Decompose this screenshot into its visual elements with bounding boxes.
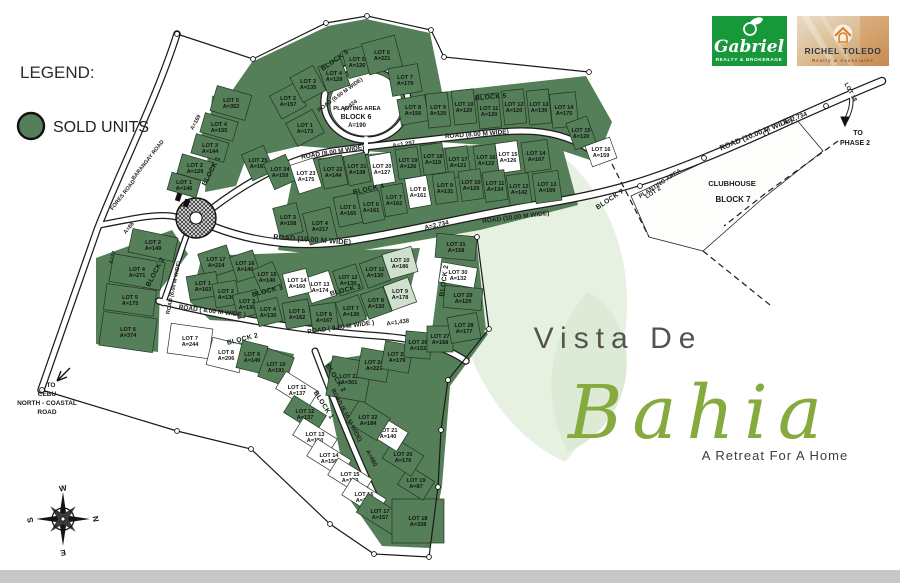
lot-block-2-28: LOT 28A=177 [447, 313, 481, 344]
lot-area-label: A=179 [389, 358, 406, 364]
lot-number-label: LOT 2 [145, 240, 161, 246]
lot-number-label: LOT 5 [289, 309, 305, 315]
lot-area-label: A=271 [129, 273, 146, 279]
lot-number-label: LOT 16 [236, 261, 255, 267]
lot-area-label: A=140 [380, 434, 397, 440]
lot-block-5-9: LOT 9A=120 [425, 92, 450, 128]
map-annotation: TO [853, 130, 863, 137]
lot-area-label: A=130 [218, 295, 235, 301]
lot-number-label: LOT 25 [249, 158, 268, 164]
lot-number-label: LOT 13 [311, 282, 330, 288]
lot-number-label: LOT 9 [437, 183, 453, 189]
lot-area-label: A=120 [430, 111, 447, 117]
lot-number-label: LOT 9 [430, 105, 446, 111]
lot-number-label: LOT 2 [187, 163, 203, 169]
map-annotation: BLOCK 6 [341, 114, 372, 121]
lot-number-label: LOT 10 [462, 180, 481, 186]
lot-number-label: LOT 17 [371, 509, 390, 515]
lot-area-label: A=126 [500, 158, 517, 164]
roundabout [175, 193, 216, 238]
lot-number-label: LOT 8 [410, 187, 426, 193]
lot-area-label: A=120 [506, 108, 523, 114]
lot-area-label: A=131 [437, 189, 454, 195]
lot-block-3-5: LOT 5A=162 [282, 299, 312, 329]
lot-block-5-10: LOT 10A=120 [451, 89, 476, 125]
lot-number-label: LOT 28 [455, 323, 474, 329]
lot-number-label: LOT 26 [409, 340, 428, 346]
lot-area-label: A=157 [280, 102, 297, 108]
lot-number-label: LOT 22 [359, 415, 378, 421]
lot-number-label: LOT 13 [530, 102, 549, 108]
lot-area-label: A=352 [223, 104, 240, 110]
lot-number-label: LOT 20 [373, 164, 392, 170]
lot-number-label: LOT 9 [244, 352, 260, 358]
lot-block-5-8: LOT 8A=156 [397, 95, 429, 125]
lot-area-label: A=129 [455, 299, 472, 305]
lot-area-label: A=161 [363, 208, 380, 214]
lot-number-label: LOT 16 [477, 155, 496, 161]
richel-tagline: Realty & Associates [812, 58, 874, 63]
lot-number-label: LOT 7 [397, 75, 413, 81]
lot-number-label: LOT 5 [349, 57, 365, 63]
lot-number-label: LOT 5 [223, 98, 239, 104]
sold-units-label: SOLD UNITS [53, 119, 149, 136]
lot-block-4-15: LOT 15A=126 [495, 141, 521, 174]
lot-area-label: A=129 [463, 186, 480, 192]
lot-block-5-13: LOT 13A=130 [526, 89, 551, 125]
lot-area-label: A=152 [410, 346, 427, 352]
lot-number-label: LOT 12 [339, 275, 358, 281]
map-annotation: PLANTING AREA [333, 106, 381, 112]
lot-number-label: LOT 2 [218, 289, 234, 295]
lot-number-label: LOT 17 [207, 257, 226, 263]
lot-area-label: A=206 [218, 356, 235, 362]
lot-number-label: LOT 6 [363, 202, 379, 208]
lot-number-label: LOT 11 [288, 385, 307, 391]
lot-number-label: LOT 18 [409, 516, 428, 522]
lot-number-label: LOT 15 [341, 472, 360, 478]
lot-area-label: A=156 [405, 111, 422, 117]
lot-number-label: LOT 20 [394, 452, 413, 458]
lot-number-label: LOT 12 [296, 409, 315, 415]
lot-number-label: LOT 10 [391, 258, 410, 264]
lot-area-label: A=130 [239, 305, 256, 311]
lot-block-2-29: LOT 29A=129 [443, 285, 483, 310]
lot-number-label: LOT 11 [366, 267, 385, 273]
lot-area-label: A=135 [300, 85, 317, 91]
project-title: Vista De Bahia A Retreat For A Home [534, 322, 849, 463]
lot-area-label: A=130 [260, 313, 277, 319]
lot-block-4-10: LOT 10A=129 [458, 169, 484, 202]
lot-area-label: A=130 [343, 312, 360, 318]
lot-area-label: A=122 [478, 161, 495, 167]
lot-area-label: A=130 [531, 108, 548, 114]
lot-block-5-7: LOT 7A=179 [388, 64, 422, 97]
road-label: A=1,438 [386, 318, 410, 327]
lot-area-label: A=168 [432, 340, 449, 346]
gabriel-logo: Gabriel REALTY & BROKERAGE [712, 16, 787, 66]
compass-rose: W N E S [25, 483, 100, 557]
lot-block-4-18: LOT 18A=119 [420, 143, 446, 176]
lot-area-label: A=184 [360, 421, 378, 427]
lot-number-label: LOT 16 [592, 147, 611, 153]
footer-bar [0, 570, 900, 583]
lot-area-label: A=162 [289, 315, 306, 321]
richel-name: RICHEL TOLEDO [805, 46, 882, 56]
lot-area-label: A=163 [195, 287, 212, 293]
lot-block-3-14: LOT 14A=160 [282, 268, 311, 297]
lot-area-label: A=146 [176, 186, 193, 192]
lot-number-label: LOT 4 [260, 307, 277, 313]
lot-area-label: A=121 [450, 163, 467, 169]
lot-area-label: A=175 [122, 301, 139, 307]
to-phase2-arrow [841, 117, 849, 126]
lot-area-label: A=328 [410, 522, 427, 528]
lot-area-label: A=120 [481, 112, 498, 118]
lot-number-label: LOT 4 [326, 71, 343, 77]
lot-area-label: A=161 [410, 193, 427, 199]
lot-area-label: A=120 [456, 108, 473, 114]
lot-number-label: LOT 11 [480, 106, 499, 112]
title-prefix: Vista De [534, 322, 703, 355]
lot-area-label: A=158 [280, 221, 297, 227]
lot-number-label: LOT 19 [407, 478, 426, 484]
richel-toledo-logo: RICHEL TOLEDO Realty & Associates [797, 16, 889, 66]
site-map-canvas: LOT 1A=173LOT 2A=157LOT 3A=135LOT 4A=129… [0, 0, 900, 583]
lot-number-label: LOT 15 [572, 128, 591, 134]
lot-area-label: A=179 [397, 81, 414, 87]
lot-block-4-8: LOT 8A=161 [405, 175, 432, 208]
lot-area-label: A=178 [392, 295, 409, 301]
lot-number-label: LOT 4 [211, 122, 228, 128]
lot-number-label: LOT 7 [182, 336, 198, 342]
lot-number-label: LOT 8 [218, 350, 234, 356]
lot-block-4-9: LOT 9A=131 [432, 172, 458, 205]
lot-number-label: LOT 8 [405, 105, 421, 111]
lot-area-label: A=137 [289, 391, 306, 397]
map-annotation: NORTH - COASTAL [17, 400, 77, 407]
lot-area-label: A=221 [366, 366, 383, 372]
lot-number-label: LOT 14 [555, 105, 575, 111]
lot-number-label: LOT 10 [267, 362, 286, 368]
lot-area-label: A=132 [450, 276, 467, 282]
lot-number-label: LOT 31 [447, 242, 466, 248]
lot-area-label: A=140 [237, 267, 254, 273]
gabriel-tagline: REALTY & BROKERAGE [716, 57, 783, 63]
lot-area-label: A=186 [392, 264, 409, 270]
lot-number-label: LOT 14 [320, 453, 340, 459]
to-cebu-arrow [57, 368, 70, 381]
lot-number-label: LOT 1 [195, 281, 211, 287]
lot-area-label: A=134 [487, 187, 505, 193]
lot-block-4-20: LOT 20A=127 [369, 152, 396, 185]
lot-area-label: A=130 [368, 304, 385, 310]
map-annotation: TO [47, 382, 56, 389]
lot-area-label: A=127 [374, 170, 391, 176]
lot-area-label: A=175 [556, 111, 573, 117]
lot-area-label: A=87 [409, 484, 423, 490]
lot-area-label: A=177 [456, 329, 473, 335]
lot-area-label: A=120 [573, 134, 590, 140]
lot-area-label: A=159 [272, 173, 289, 179]
lot-area-label: A=138 [349, 170, 366, 176]
compass-west: W [58, 483, 67, 493]
lot-area-label: A=140 [244, 358, 261, 364]
lot-area-label: A=244 [182, 342, 200, 348]
lot-number-label: LOT 6 [316, 312, 332, 318]
lot-area-label: A=129 [326, 77, 343, 83]
lot-number-label: LOT 6 [120, 327, 136, 333]
lot-number-label: LOT 23 [340, 374, 359, 380]
lot-number-label: LOT 23 [297, 171, 316, 177]
lot-number-label: LOT 1 [176, 180, 192, 186]
lot-area-label: A=149 [145, 246, 162, 252]
lot-area-label: A=217 [312, 227, 329, 233]
gabriel-name: Gabriel [714, 37, 785, 57]
lot-number-label: LOT 6 [374, 50, 390, 56]
lot-number-label: LOT 3 [300, 79, 316, 85]
lot-block-4-12: LOT 12A=142 [506, 173, 532, 206]
legend: LEGEND: SOLD UNITS [18, 63, 149, 139]
lot-number-label: LOT 14 [288, 278, 308, 284]
lot-block-4-14: LOT 14A=167 [521, 139, 551, 172]
lot-number-label: LOT 3 [202, 143, 218, 149]
lot-number-label: LOT 15 [258, 272, 277, 278]
lot-area-label: A=130 [367, 273, 384, 279]
lot-block-3-4: LOT 4A=130 [253, 297, 282, 326]
gate-structure [175, 193, 182, 202]
lot-area-label: A=169 [539, 188, 556, 194]
subdivision-map: LOT 1A=173LOT 2A=157LOT 3A=135LOT 4A=129… [0, 0, 900, 583]
lot-area-label: A=175 [298, 177, 315, 183]
lot-number-label: LOT 9 [392, 289, 408, 295]
lot-number-label: LOT 14 [527, 151, 547, 157]
map-annotation: A=190 [348, 123, 367, 129]
lot-area-label: A=155 [211, 128, 228, 134]
lot-area-label: A=119 [425, 160, 441, 166]
lot-number-label: LOT 13 [538, 182, 557, 188]
lot-number-label: LOT 7 [386, 195, 402, 201]
lot-number-label: LOT 4 [129, 267, 146, 273]
lot-area-label: A=221 [374, 56, 391, 62]
lot-area-label: A=374 [120, 333, 138, 339]
lot-block-4-13: LOT 13A=169 [532, 170, 562, 203]
lot-number-label: LOT 8 [368, 298, 384, 304]
lot-block-4-11: LOT 11A=134 [482, 170, 508, 203]
lot-number-label: LOT 17 [449, 157, 468, 163]
lot-block-2-7: LOT 7A=244 [167, 323, 213, 359]
lot-number-label: LOT 3 [280, 215, 296, 221]
lot-block-2-31: LOT 31A=158 [435, 233, 477, 260]
lot-number-label: LOT 30 [449, 270, 468, 276]
lot-number-label: LOT 12 [510, 184, 529, 190]
lot-number-label: LOT 15 [499, 152, 518, 158]
map-annotation: CEBU [38, 391, 57, 398]
lot-number-label: LOT 2 [280, 96, 296, 102]
lot-number-label: LOT 3 [239, 299, 255, 305]
map-annotation: BLOCK 7 [715, 195, 751, 204]
lot-area-label: A=160 [289, 284, 306, 290]
compass-north: N [91, 515, 101, 522]
lot-number-label: LOT 4 [312, 221, 329, 227]
lot-number-label: LOT 19 [399, 158, 418, 164]
title-tagline: A Retreat For A Home [702, 448, 848, 463]
house-icon [834, 25, 853, 44]
lot-area-label: A=129 [187, 169, 204, 175]
lot-area-label: A=157 [372, 515, 389, 521]
lot-number-label: LOT 12 [505, 102, 524, 108]
lot-area-label: A=126 [400, 164, 417, 170]
lot-number-label: LOT 24 [271, 167, 291, 173]
lot-area-label: A=174 [312, 288, 330, 294]
lot-area-label: A=126 [349, 63, 366, 69]
lot-area-label: A=144 [202, 149, 220, 155]
lot-area-label: A=159 [593, 153, 610, 159]
lot-number-label: LOT 22 [324, 167, 343, 173]
sold-units-swatch [18, 113, 44, 139]
lot-number-label: LOT 18 [424, 154, 443, 160]
lot-area-label: A=191 [268, 368, 285, 374]
lot-area-label: A=165 [340, 211, 357, 217]
lot-area-label: A=158 [448, 248, 465, 254]
lot-area-label: A=144 [325, 173, 343, 179]
lot-number-label: LOT 13 [306, 432, 325, 438]
lot-block-4-19: LOT 19A=126 [395, 147, 421, 180]
map-annotation: PHASE 2 [840, 140, 870, 147]
lot-area-label: A=167 [316, 318, 333, 324]
lot-number-label: LOT 7 [343, 306, 359, 312]
lot-number-label: LOT 21 [348, 164, 367, 170]
lot-area-label: A=214 [208, 263, 226, 269]
lot-area-label: A=173 [297, 129, 314, 135]
lot-number-label: LOT 5 [340, 205, 356, 211]
lot-area-label: A=167 [528, 157, 545, 163]
lot-number-label: LOT 27 [431, 334, 450, 340]
lot-number-label: LOT 11 [486, 181, 505, 187]
legend-title: LEGEND: [20, 63, 95, 82]
map-annotation: CLUBHOUSE [708, 179, 756, 188]
compass-south: S [25, 516, 35, 523]
lot-area-label: A=142 [511, 190, 528, 196]
map-annotation: ROAD [37, 409, 56, 416]
lot-area-label: A=162 [386, 201, 403, 207]
lot-number-label: LOT 29 [454, 293, 473, 299]
compass-east: E [59, 548, 66, 558]
lot-number-label: LOT 5 [122, 295, 138, 301]
lot-block-2-6: LOT 6A=374 [99, 311, 157, 352]
lot-area-label: A=140 [259, 278, 276, 284]
lot-number-label: LOT 1 [297, 123, 313, 129]
lot-area-label: A=176 [395, 458, 412, 464]
lot-number-label: LOT 10 [455, 102, 474, 108]
title-name: Bahia [566, 370, 832, 456]
